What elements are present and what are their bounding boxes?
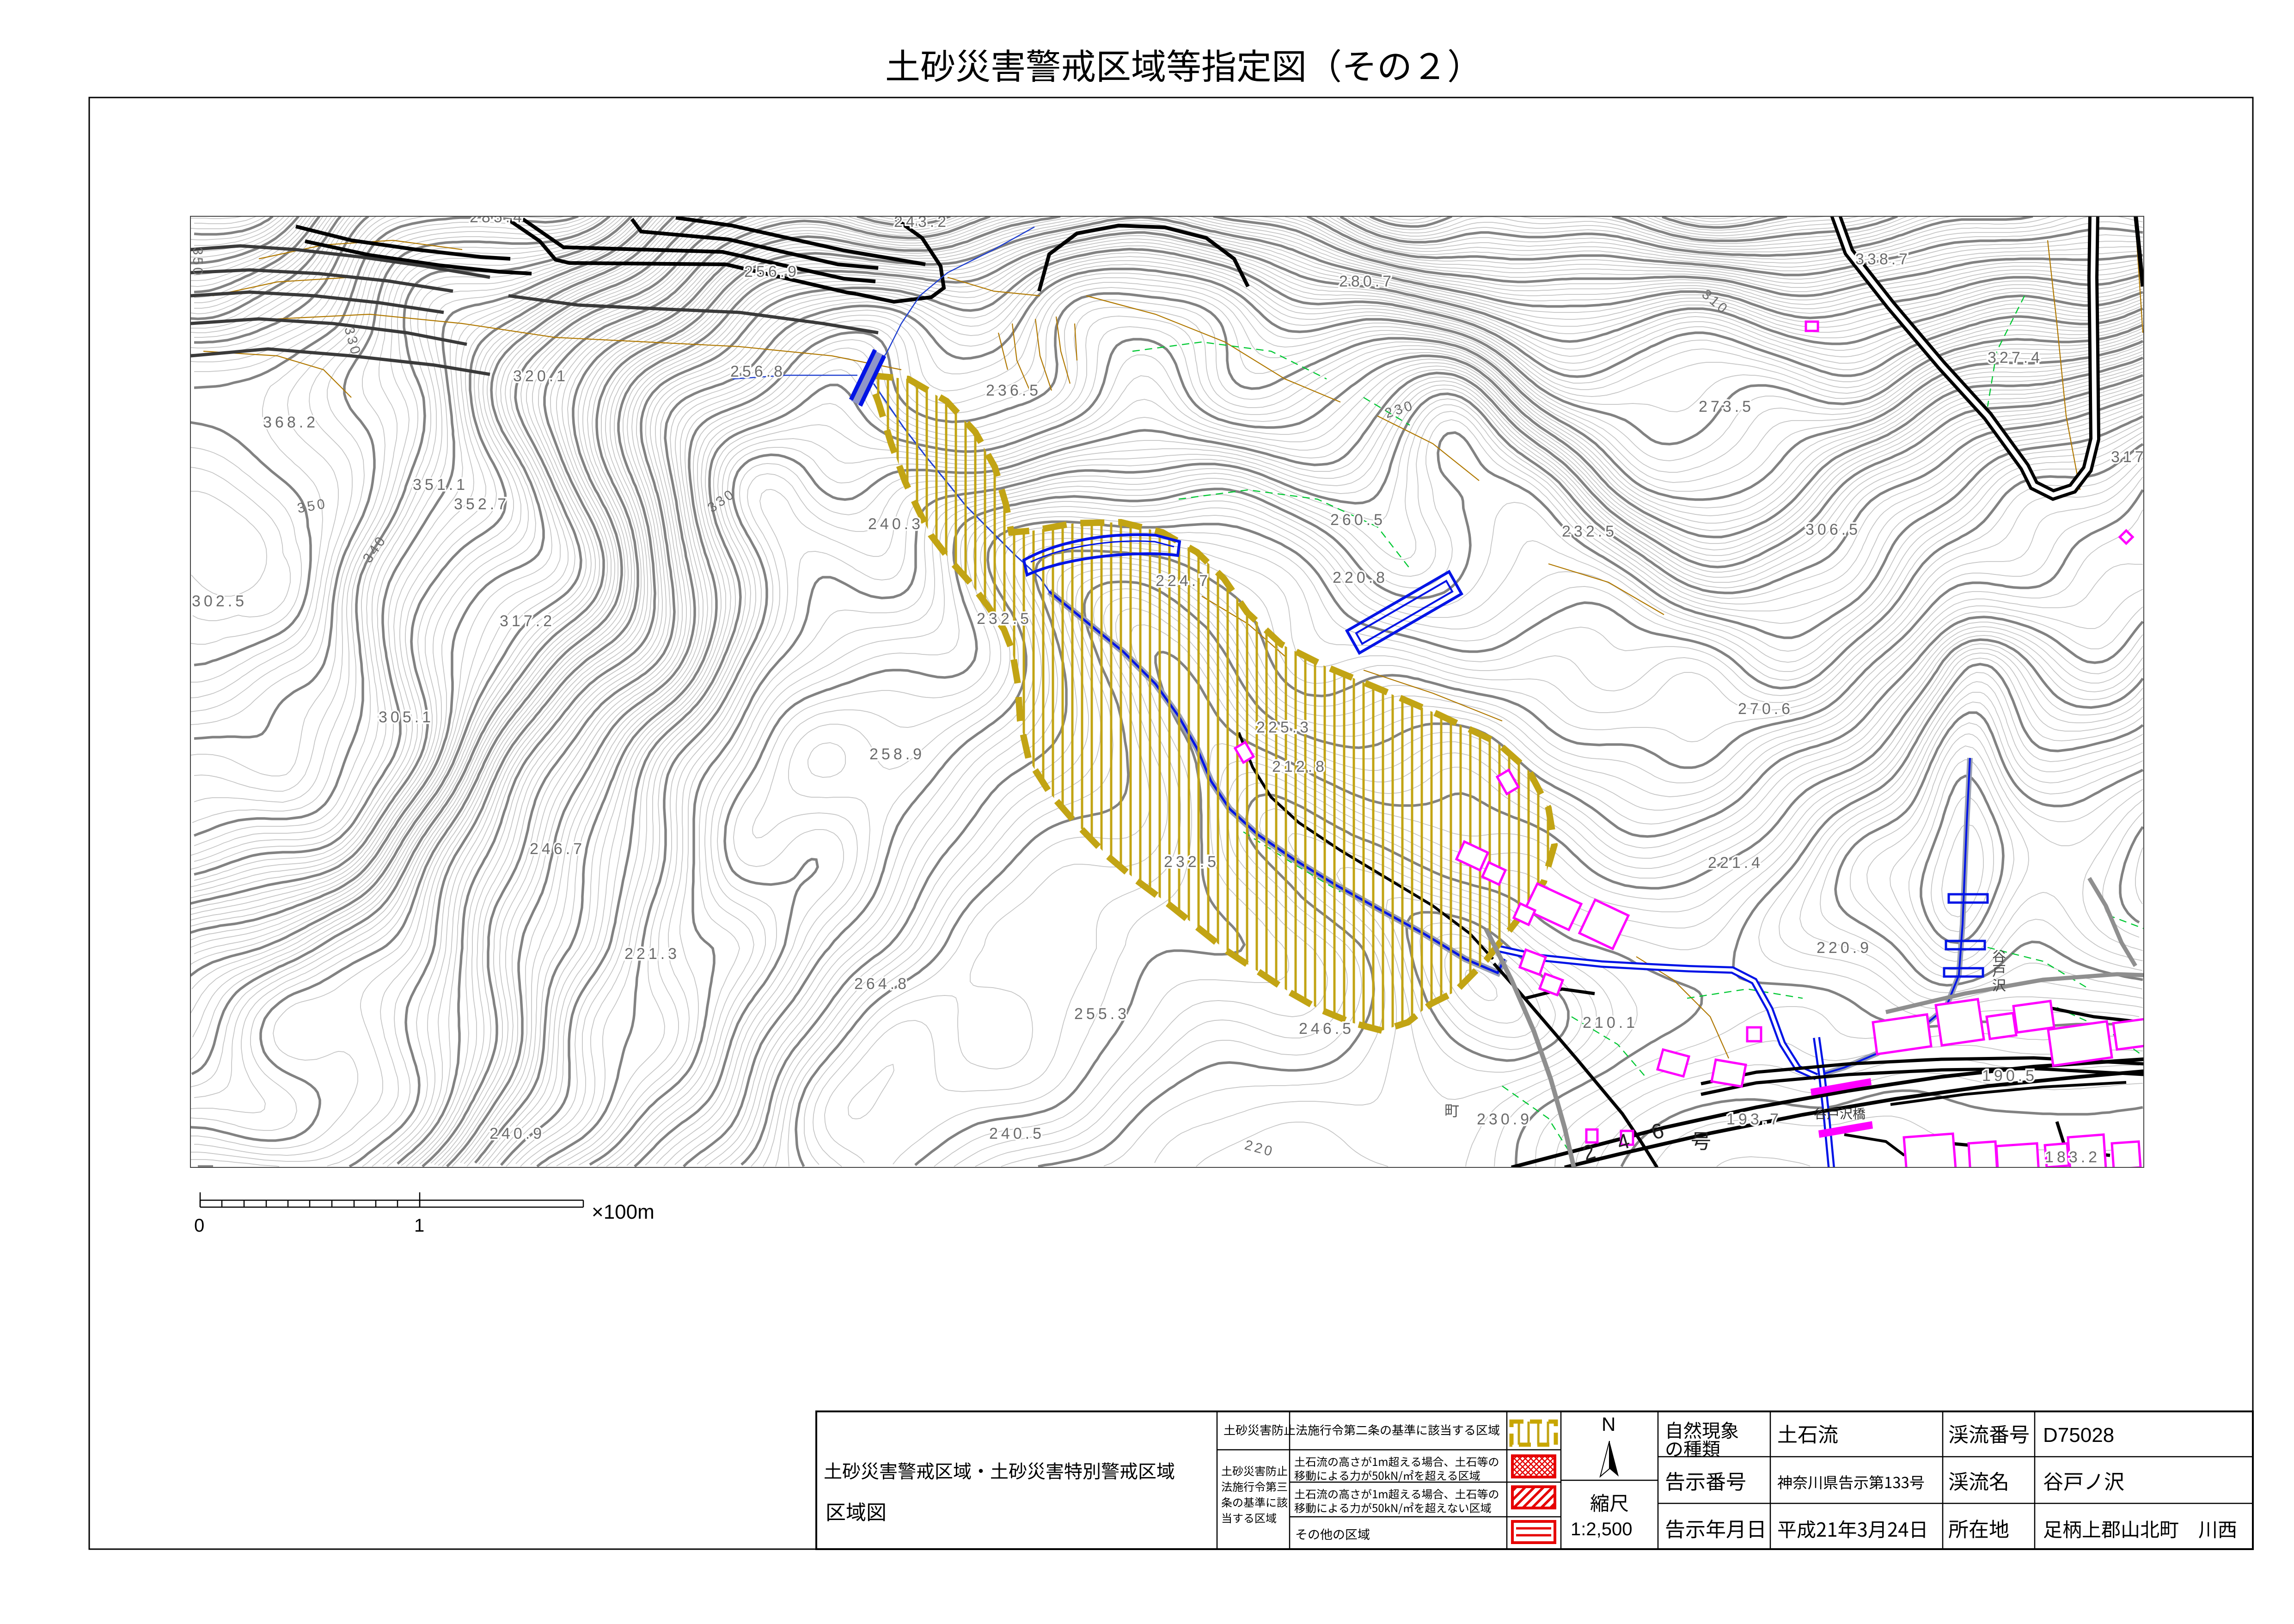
svg-text:1: 1 bbox=[414, 1215, 424, 1236]
svg-text:240.3: 240.3 bbox=[868, 515, 924, 533]
svg-text:236.5: 236.5 bbox=[986, 382, 1041, 399]
svg-text:273.5: 273.5 bbox=[1699, 398, 1754, 415]
svg-text:256.8: 256.8 bbox=[730, 363, 786, 380]
svg-text:224.7: 224.7 bbox=[1156, 572, 1211, 590]
svg-text:193.7: 193.7 bbox=[1726, 1111, 1782, 1128]
svg-text:190.5: 190.5 bbox=[1982, 1067, 2037, 1085]
svg-text:350: 350 bbox=[190, 247, 205, 277]
svg-text:240.5: 240.5 bbox=[989, 1125, 1045, 1142]
svg-text:260.5: 260.5 bbox=[1330, 511, 1386, 529]
svg-text:246.5: 246.5 bbox=[1299, 1020, 1354, 1038]
svg-text:320.1: 320.1 bbox=[513, 367, 569, 385]
svg-text:0: 0 bbox=[194, 1215, 204, 1236]
svg-text:225.3: 225.3 bbox=[1256, 719, 1312, 736]
svg-text:221.3: 221.3 bbox=[624, 945, 680, 963]
svg-text:232.5: 232.5 bbox=[977, 610, 1032, 628]
svg-text:280.7: 280.7 bbox=[1339, 273, 1395, 290]
svg-text:183.2: 183.2 bbox=[2045, 1148, 2100, 1166]
svg-text:D75028: D75028 bbox=[2043, 1424, 2114, 1447]
svg-text:220.8: 220.8 bbox=[1333, 569, 1388, 586]
svg-text:351.1: 351.1 bbox=[413, 476, 468, 494]
svg-text:255.3: 255.3 bbox=[1074, 1005, 1130, 1023]
svg-text:256.9: 256.9 bbox=[744, 263, 800, 281]
svg-text:302.5: 302.5 bbox=[192, 592, 247, 610]
svg-text:×100m: ×100m bbox=[592, 1201, 655, 1223]
svg-text:N: N bbox=[1602, 1413, 1615, 1435]
svg-text:230.9: 230.9 bbox=[1477, 1111, 1532, 1128]
svg-text:246.7: 246.7 bbox=[530, 840, 585, 858]
svg-text:264.8: 264.8 bbox=[854, 975, 910, 993]
svg-text:1:2,500: 1:2,500 bbox=[1571, 1519, 1632, 1539]
svg-text:258.9: 258.9 bbox=[869, 745, 925, 763]
svg-text:220.9: 220.9 bbox=[1817, 939, 1872, 957]
svg-text:232.5: 232.5 bbox=[1164, 853, 1219, 871]
svg-text:232.5: 232.5 bbox=[1562, 523, 1617, 540]
svg-text:338.7: 338.7 bbox=[1855, 250, 1911, 268]
svg-text:212.8: 212.8 bbox=[1272, 758, 1327, 775]
svg-text:368.2: 368.2 bbox=[263, 414, 318, 431]
svg-text:270.6: 270.6 bbox=[1738, 700, 1793, 718]
svg-text:305.1: 305.1 bbox=[379, 708, 434, 726]
svg-text:317.2: 317.2 bbox=[500, 612, 555, 630]
svg-text:352.7: 352.7 bbox=[454, 495, 509, 513]
svg-text:240.9: 240.9 bbox=[489, 1125, 545, 1142]
svg-text:327.4: 327.4 bbox=[1988, 349, 2043, 366]
svg-text:221.4: 221.4 bbox=[1708, 854, 1763, 872]
svg-text:306.5: 306.5 bbox=[1805, 521, 1861, 538]
svg-text:210.1: 210.1 bbox=[1583, 1014, 1638, 1032]
